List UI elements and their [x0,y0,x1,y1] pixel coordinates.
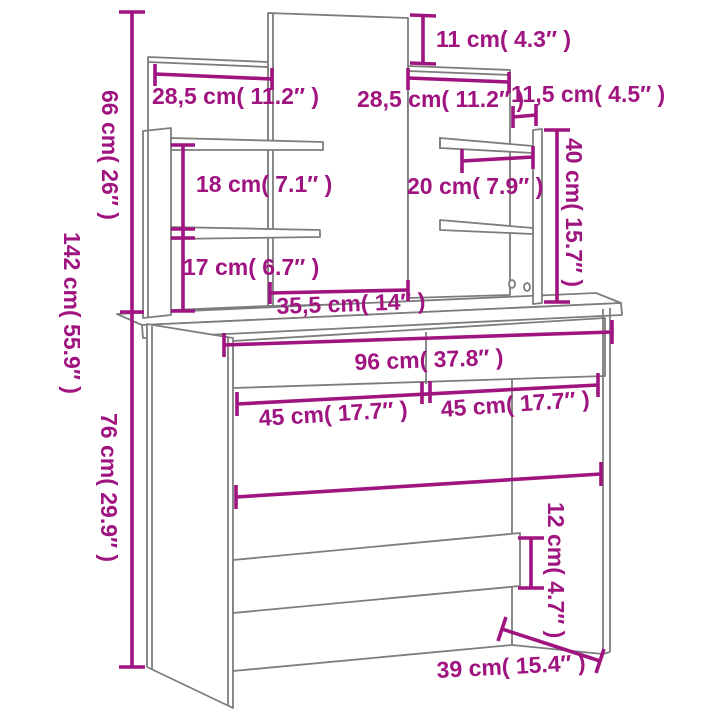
stretcher-board [233,533,520,613]
dimension-diagram: 11 cm( 4.3″ ) 28,5 cm( 11.2″ ) 28,5 cm( … [0,0,720,720]
left-support-panel [143,128,171,318]
right-shelf-depth-label: 20 cm( 7.9″ ) [407,174,543,198]
stretcher-height-label: 12 cm( 4.7″ ) [544,502,568,638]
right-support-height-label: 40 cm( 15.7″ ) [562,138,586,287]
stretcher-height-dimension-line [518,538,544,588]
upper-section-height-label: 66 cm( 26″ ) [98,90,122,220]
left-shelf-spacing-label: 18 cm( 7.1″ ) [196,172,332,196]
lower-shelf-height-label: 17 cm( 6.7″ ) [183,255,319,279]
table-height-label: 76 cm( 29.9″ ) [97,413,121,562]
right-gap-width-label: 11,5 cm( 4.5″ ) [511,82,665,106]
right-shelf-width-label: 28,5 cm( 11.2″ ) [357,87,524,111]
mirror-width-label: 35,5 cm( 14″ ) [276,289,426,318]
left-shelf-width-label: 28,5 cm( 11.2″ ) [152,84,319,108]
mirror-top-offset-dimension-line [410,15,436,64]
mirror-top-offset-label: 11 cm( 4.3″ ) [436,27,571,51]
cam-hole-icons [509,280,530,291]
left-leg-panel [147,324,233,708]
table-width-label: 96 cm( 37.8″ ) [354,345,504,374]
total-height-label: 142 cm( 55.9″ ) [60,232,84,394]
